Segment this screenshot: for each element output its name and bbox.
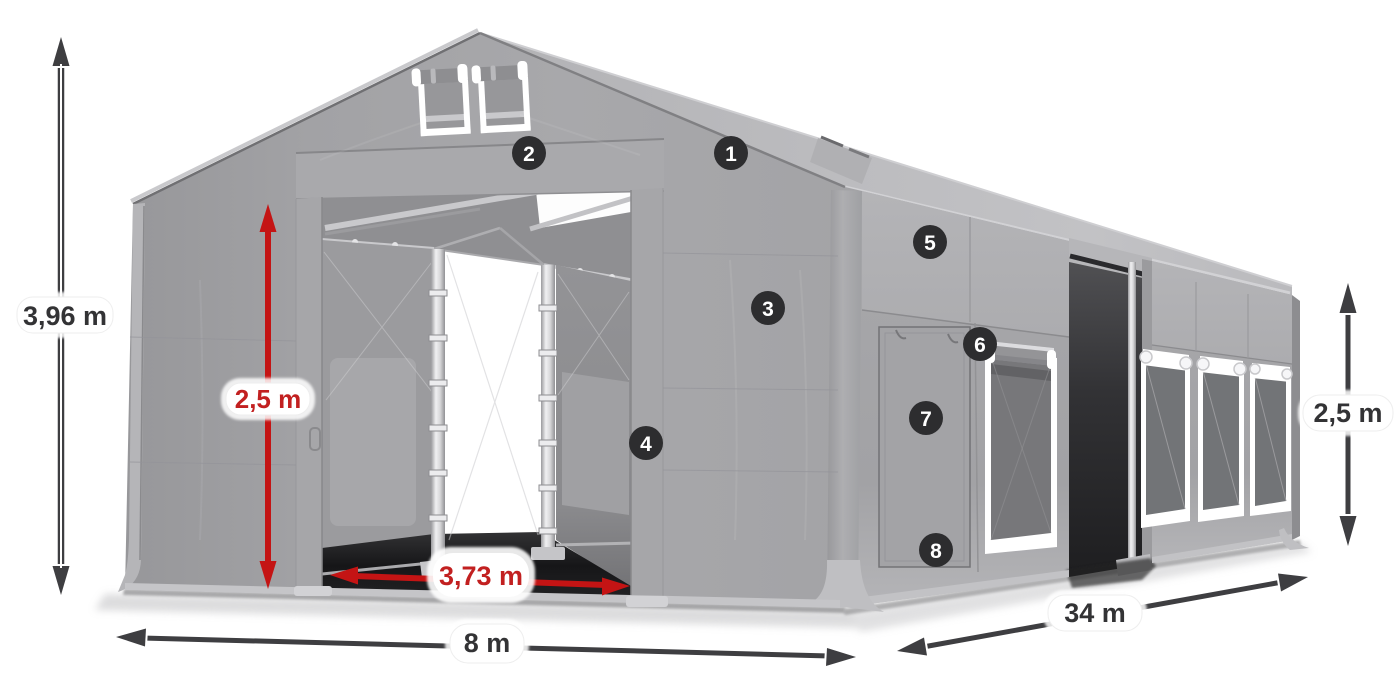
svg-text:6: 6: [974, 334, 986, 357]
svg-text:8 m: 8 m: [464, 628, 511, 658]
svg-text:2,5 m: 2,5 m: [235, 384, 302, 414]
svg-text:7: 7: [920, 408, 932, 431]
svg-text:4: 4: [640, 433, 652, 456]
svg-text:8: 8: [930, 540, 942, 563]
svg-text:5: 5: [924, 232, 936, 255]
svg-text:3,96 m: 3,96 m: [23, 301, 107, 331]
svg-text:3,73 m: 3,73 m: [439, 561, 523, 591]
svg-text:2: 2: [523, 143, 535, 166]
svg-text:3: 3: [762, 298, 774, 321]
svg-text:2,5 m: 2,5 m: [1313, 398, 1382, 428]
svg-text:1: 1: [725, 143, 737, 166]
svg-text:34 m: 34 m: [1064, 598, 1126, 628]
